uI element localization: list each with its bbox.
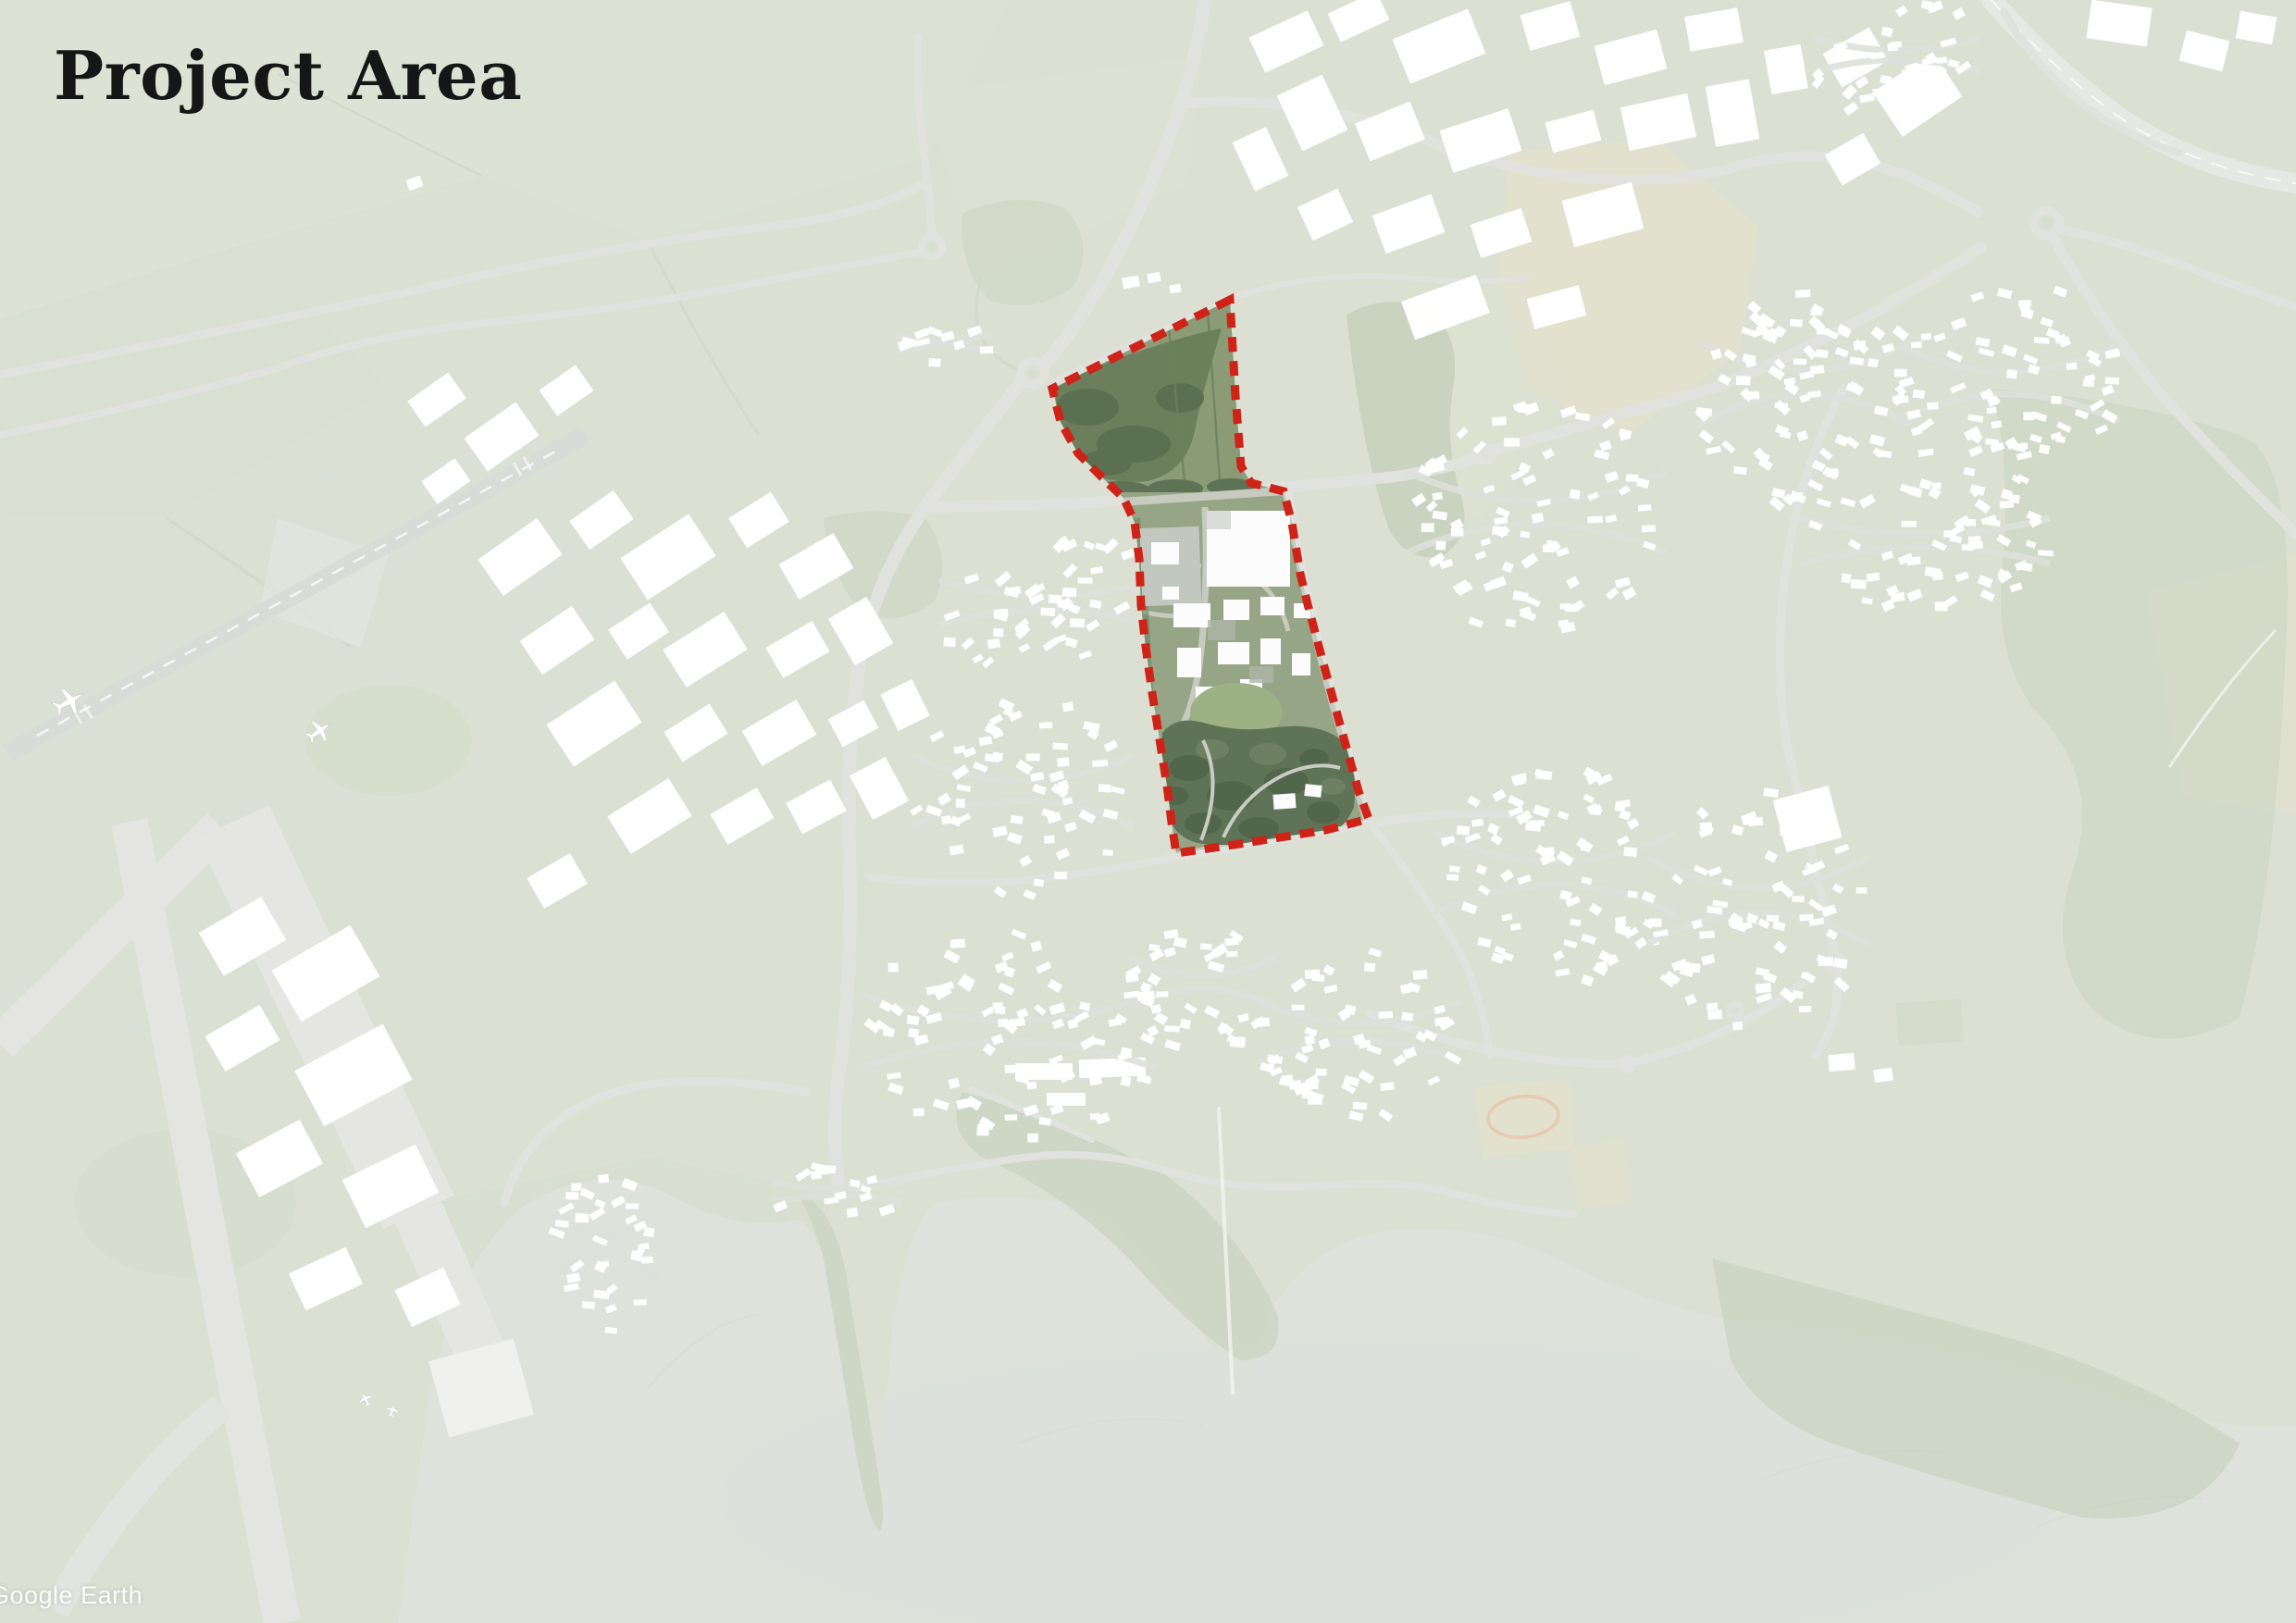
basemap-wash-veil [0, 0, 2296, 1623]
aerial-map [0, 0, 2296, 1623]
slide: Project Area Google Earth [0, 0, 2296, 1623]
google-earth-attribution: Google Earth [0, 1581, 143, 1610]
page-title: Project Area [54, 43, 522, 109]
